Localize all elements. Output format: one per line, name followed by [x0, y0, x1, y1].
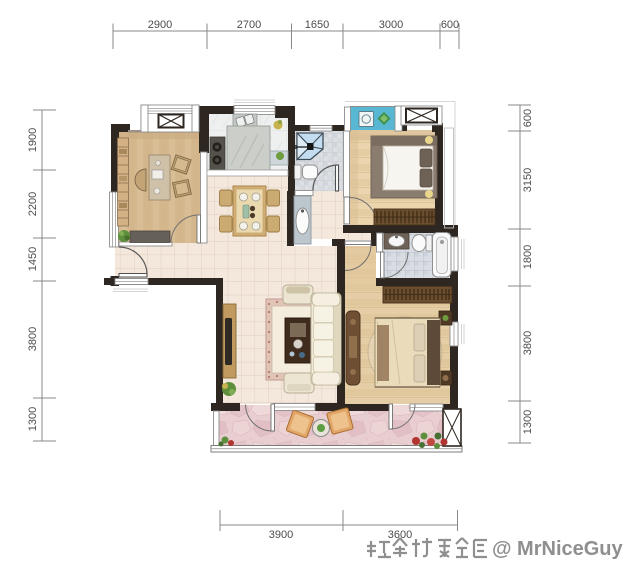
svg-text:600: 600 [522, 109, 534, 127]
svg-text:600: 600 [441, 19, 459, 31]
svg-text:3900: 3900 [269, 529, 293, 541]
svg-text:2200: 2200 [27, 192, 39, 216]
svg-text:1300: 1300 [522, 410, 534, 434]
svg-text:1450: 1450 [27, 247, 39, 271]
svg-text:3150: 3150 [522, 168, 534, 192]
svg-text:1800: 1800 [522, 245, 534, 269]
svg-text:3800: 3800 [522, 331, 534, 355]
svg-text:@ MrNiceGuy: @ MrNiceGuy [492, 538, 624, 560]
svg-text:3800: 3800 [27, 327, 39, 351]
svg-text:1650: 1650 [305, 19, 329, 31]
svg-text:2900: 2900 [148, 19, 172, 31]
svg-text:1900: 1900 [27, 128, 39, 152]
svg-text:2700: 2700 [237, 19, 261, 31]
svg-text:3000: 3000 [379, 19, 403, 31]
svg-text:1300: 1300 [27, 407, 39, 431]
